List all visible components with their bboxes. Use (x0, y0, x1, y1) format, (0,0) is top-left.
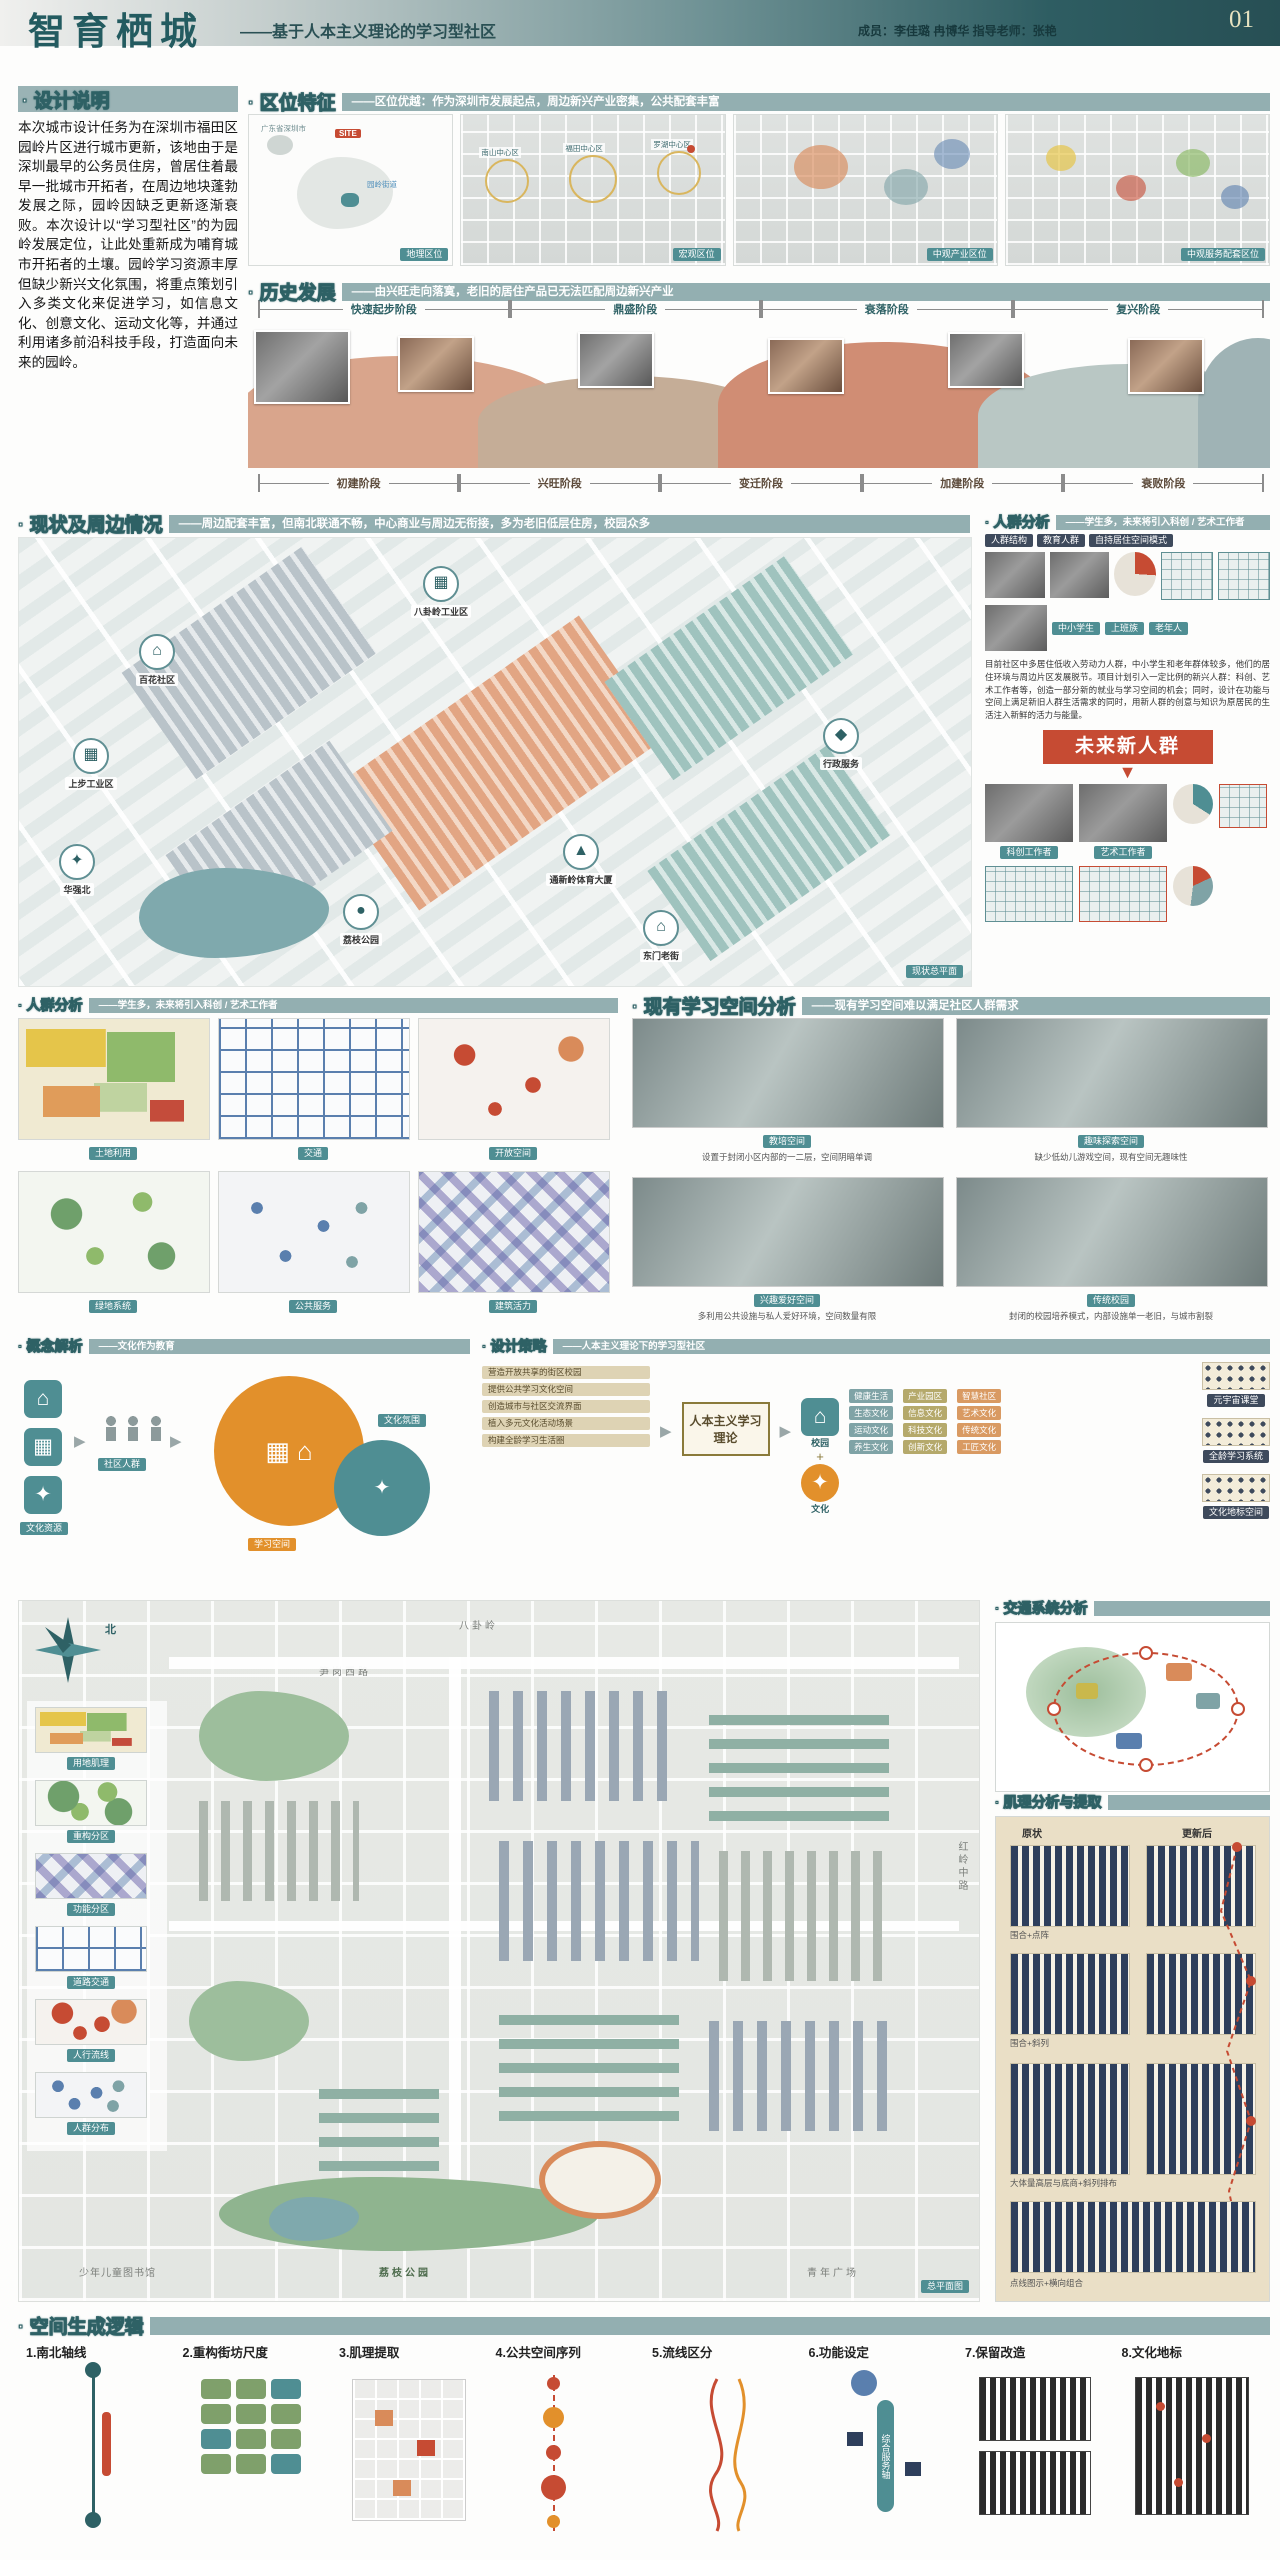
history-top-timeline: 快速起步阶段 鼎盛阶段 衰落阶段 复兴阶段 (258, 300, 1264, 318)
phase-label: 加建阶段 (932, 475, 992, 491)
mini-diagram[interactable]: 道路交通 (27, 1926, 155, 1990)
tag: 智慧社区 (957, 1389, 1001, 1403)
campus-culture-icons: ⌂ 校园 + ✦ 文化 (801, 1398, 839, 1515)
arrow-right-icon (780, 1422, 792, 1440)
strategy-header: · 设计策略 ——人本主义理论下的学习型社区 (482, 1336, 1270, 1356)
texture-header: · 肌理分析与提取 (995, 1792, 1270, 1812)
strategy-list: 营造开放共享的街区校园 提供公共学习文化空间 创造城市与社区交流界面 植入多元文… (482, 1362, 650, 1451)
tag: 工匠文化 (957, 1440, 1001, 1454)
traffic-title: · 交通系统分析 (995, 1598, 1088, 1618)
strategy-item: 创造城市与社区交流界面 (482, 1400, 650, 1413)
phase-cell: 初建阶段 (258, 474, 459, 492)
callout[interactable]: ⌂ 东门老街 (619, 910, 703, 964)
map-caption: 土地利用 (89, 1147, 137, 1160)
mini-diagram[interactable]: 人群分布 (27, 2072, 155, 2136)
right-row: 全龄学习系统 (1202, 1418, 1270, 1464)
status-header: · 现状及周边情况 ——周边配套丰富，但南北联通不畅，中心商业与周边无衔接，多为… (18, 510, 970, 537)
person-icon (104, 1416, 118, 1442)
learning-panel-campus[interactable]: 传统校园 封闭的校园培养模式，内部设施单一老旧，与城市割裂 (956, 1177, 1266, 1322)
traffic-header: · 交通系统分析 (995, 1598, 1270, 1618)
location-title: · 区位特征 (248, 88, 336, 115)
building-icon: ▦ (24, 1428, 62, 1466)
phase-label: 复兴阶段 (1108, 301, 1168, 317)
mini-label: 道路交通 (67, 1976, 115, 1989)
inset-label-street: 园岭街道 (367, 179, 397, 190)
block (201, 2454, 231, 2474)
openspace-map-image (418, 1018, 610, 1140)
person-icon (126, 1416, 140, 1442)
panel-caption: 趣味探索空间 (1078, 1135, 1144, 1148)
future-label: 艺术工作者 (1094, 846, 1151, 859)
ring-nanshan (485, 159, 529, 203)
future-axon-cube (1219, 784, 1267, 828)
arrow-right-icon (170, 1432, 182, 1450)
crowd-tagline: ——学生多，未来将引入科创 / 艺术工作者 (1056, 515, 1270, 530)
arrow-right-icon (74, 1432, 86, 1450)
park-icon: ● (343, 894, 379, 930)
credits-text: 成员：李佳璐 冉博华 指导老师：张艳 (858, 22, 1057, 39)
icon-label: 校园 (801, 1436, 839, 1449)
design-note-section: · 设计说明 本次城市设计任务为在深圳市福田区园岭片区进行城市更新，该地由于是深… (18, 86, 238, 372)
mini-map (35, 1926, 147, 1972)
step-label: 6.功能设定 (801, 2342, 958, 2361)
phase-cell: 变迁阶段 (660, 474, 861, 492)
panel-photo (632, 1018, 944, 1128)
texture-header-bar (1108, 1795, 1270, 1810)
col-head-original: 原状 (1022, 1825, 1042, 1840)
landmark-dot (1174, 2478, 1183, 2487)
landuse-map-image (18, 1018, 210, 1140)
history-photo[interactable] (948, 332, 1024, 388)
step-preserve[interactable]: 7.保留改造 (957, 2342, 1114, 2542)
street-label-top: 八卦岭 (459, 1617, 498, 1632)
park-label: 荔枝公园 (379, 2264, 431, 2279)
history-photo[interactable] (578, 332, 654, 388)
design-note-body: 本次城市设计任务为在深圳市福田区园岭片区进行城市更新，该地由于是深圳最早的公务员… (18, 118, 238, 372)
factory-icon: ▦ (73, 738, 109, 774)
texture-cell (393, 2480, 411, 2496)
footprint-pattern (979, 2377, 1091, 2441)
map-caption: 公共服务 (289, 1300, 337, 1313)
service-axis-capsule: 综合服务轴 (877, 2400, 894, 2512)
concept-label: 社区人群 (98, 1458, 146, 1471)
space-node (543, 2407, 564, 2428)
right-row: 元宇宙课堂 (1202, 1362, 1270, 1408)
step-sequence[interactable]: 4.公共空间序列 (488, 2342, 645, 2542)
icon-label: 文化 (801, 1502, 839, 1515)
right-row-label: 文化地标空间 (1203, 1506, 1269, 1519)
street-label-right: 红岭中路 (954, 1841, 969, 1893)
pattern-caption: 围合+点阵 (1010, 1929, 1049, 1941)
crowd-photo-row2: 中小学生 上班族 老年人 (985, 605, 1270, 651)
analysis-map-services[interactable]: 公共服务 (218, 1171, 408, 1314)
panel-caption: 兴趣爱好空间 (754, 1294, 820, 1307)
phase-cell: 鼎盛阶段 (510, 300, 762, 318)
location-tagline: ——区位优越：作为深圳市发展起点，周边新兴产业密集，公共配套丰富 (342, 93, 1270, 111)
road-strip (449, 1657, 461, 2241)
industry-blob (884, 169, 928, 205)
callout-label: 八卦岭工业区 (411, 605, 471, 618)
landmark-dot (1202, 2434, 1211, 2443)
down-arrow-icon (985, 764, 1270, 780)
learning-header: · 现有学习空间分析 ——现有学习空间难以满足社区人群需求 (632, 992, 1270, 1019)
crowd-photo[interactable] (985, 552, 1045, 598)
step-label: 3.肌理提取 (331, 2342, 488, 2361)
phase-label: 衰落阶段 (857, 301, 917, 317)
pattern-caption: 大体量高层与底商+斜列排布 (1010, 2177, 1117, 2189)
park-lake (139, 868, 329, 958)
crowd-photo[interactable] (1050, 552, 1110, 598)
learning-panel-hobby[interactable]: 兴趣爱好空间 多利用公共设施与私人爱好环境，空间数量有限 (632, 1177, 942, 1322)
map-caption: 建筑活力 (489, 1300, 537, 1313)
axis-dot (85, 2512, 101, 2528)
crowd-pie-chart (1114, 552, 1156, 596)
block (236, 2379, 266, 2399)
collage-hill (1198, 338, 1270, 468)
building-block (1116, 1733, 1142, 1749)
analysis-map-openspace[interactable]: 开放空间 (418, 1018, 608, 1161)
function-block (905, 2462, 921, 2476)
concept-label: 文化氛围 (378, 1414, 426, 1427)
person-tag: 上班族 (1105, 622, 1144, 635)
panel-desc: 多利用公共设施与私人爱好环境，空间数量有限 (632, 1310, 942, 1322)
phase-label: 初建阶段 (329, 475, 389, 491)
steps-title: · 空间生成逻辑 (18, 2312, 144, 2339)
steps-header-bar (150, 2317, 1270, 2335)
step-landmark[interactable]: 8.文化地标 (1114, 2342, 1271, 2542)
phase-cell: 衰落阶段 (761, 300, 1013, 318)
campus-icon: ⌂ (801, 1398, 839, 1436)
step-circulation[interactable]: 5.流线区分 (644, 2342, 801, 2542)
map-caption: 绿地系统 (89, 1300, 137, 1313)
culture-circle-teal: ✦ (334, 1440, 430, 1536)
mini-diagram[interactable]: 人行流线 (27, 1999, 155, 2063)
design-note-header: · 设计说明 (18, 86, 238, 112)
strategy-title: · 设计策略 (482, 1336, 547, 1356)
panel-photo (956, 1177, 1268, 1287)
library-label: 少年儿童图书馆 (79, 2264, 156, 2279)
history-photo[interactable] (398, 336, 474, 392)
history-photo[interactable] (768, 338, 844, 394)
callout[interactable]: ▦ 八卦岭工业区 (399, 566, 483, 620)
block (236, 2429, 266, 2449)
tag-column-community: 智慧社区 艺术文化 传统文化 工匠文化 (957, 1386, 1001, 1457)
phase-label: 鼎盛阶段 (605, 301, 665, 317)
block (201, 2404, 231, 2424)
flow-lines (677, 2375, 767, 2535)
inset-label-province: 广东省深圳市 (261, 123, 306, 134)
location-maps-row: 广东省深圳市 园岭街道 SITE 地理区位 南山中心区 福田中心区 罗湖中心区 … (248, 114, 1270, 266)
page-subtitle: ——基于人本主义理论的学习型社区 (240, 18, 496, 42)
steps-row: 1.南北轴线 2.重构街坊尺度 3. (18, 2342, 1270, 2542)
panel-desc: 设置于封闭小区内部的一二层，空间阴暗单调 (632, 1151, 942, 1163)
star-icon: ✦ (59, 844, 95, 880)
strategy-item: 营造开放共享的街区校园 (482, 1366, 650, 1379)
phase-label: 变迁阶段 (731, 475, 791, 491)
map-macro[interactable]: 南山中心区 福田中心区 罗湖中心区 宏观区位 (460, 114, 725, 266)
history-tagline: ——由兴旺走向落寞，老旧的居住产品已无法匹配周边新兴产业 (342, 283, 1270, 301)
callout[interactable]: ⌂ 百花社区 (115, 634, 199, 688)
house-icon: ⌂ (643, 910, 679, 946)
ring-luohu (657, 151, 701, 195)
panel-caption: 传统校园 (1087, 1294, 1135, 1307)
mini-label: 人群分布 (67, 2122, 115, 2135)
learning-panel-exploration[interactable]: 趣味探索空间 缺少低幼儿游戏空间，现有空间无趣味性 (956, 1018, 1266, 1163)
col-head: 自持居住空间模式 (1089, 534, 1173, 547)
mini-label: 用地肌理 (67, 1757, 115, 1770)
pictogram-grid (1202, 1418, 1270, 1446)
step-texture[interactable]: 3.肌理提取 (331, 2342, 488, 2542)
park-blob (189, 1981, 309, 2061)
mini-diagram[interactable]: 功能分区 (27, 1853, 155, 1917)
phase-cell: 兴旺阶段 (459, 474, 660, 492)
future-photo[interactable] (985, 784, 1073, 842)
future-card: 科创工作者 (985, 784, 1073, 860)
right-row-label: 全龄学习系统 (1203, 1450, 1269, 1463)
culture-icon: ✦ (801, 1464, 839, 1502)
callout[interactable]: ▦ 上步工业区 (49, 738, 133, 792)
texture-map (352, 2379, 466, 2521)
steps-header: · 空间生成逻辑 (18, 2312, 1270, 2339)
tag: 传统文化 (957, 1423, 1001, 1437)
analysis-map-traffic[interactable]: 交通 (218, 1018, 408, 1161)
site-district-shape (341, 193, 359, 207)
resource-icons: ⌂ ▦ ✦ (24, 1380, 62, 1514)
design-note-title: · 设计说明 (22, 86, 110, 113)
step-label: 5.流线区分 (644, 2342, 801, 2361)
poster-board: 智育栖城 ——基于人本主义理论的学习型社区 成员：李佳璐 冉博华 指导老师：张艳… (0, 0, 1280, 2560)
callout-label: 行政服务 (820, 757, 862, 770)
history-title: · 历史发展 (248, 278, 336, 305)
service-blob (1176, 149, 1210, 177)
analysis-header: · 人群分析 ——学生多，未来将引入科创 / 艺术工作者 (18, 995, 618, 1015)
factory-icon: ▦ (423, 566, 459, 602)
future-card: 艺术工作者 (1079, 784, 1167, 860)
space-node (547, 2377, 560, 2390)
block-grid (201, 2379, 305, 2474)
master-plan[interactable]: 北 八卦岭 笋岗西路 红岭中路 少年儿童图书馆 荔枝公园 青年广场 总平面图 用… (18, 1600, 980, 2302)
block (236, 2454, 266, 2474)
mini-diagram[interactable]: 重构分区 (27, 1780, 155, 1844)
axis-red-bar (102, 2412, 111, 2476)
step-label: 7.保留改造 (957, 2342, 1114, 2361)
axon-caption: 现状总平面 (906, 965, 963, 978)
panel-photo (956, 1018, 1268, 1128)
texture-section: · 肌理分析与提取 原状 更新后 围合+点阵 围合+斜列 大体量高层与底商+斜列… (995, 1792, 1270, 2302)
crowd-header: · 人群分析 ——学生多，未来将引入科创 / 艺术工作者 (985, 512, 1270, 532)
site-axonometric[interactable]: ▦ 八卦岭工业区 ⌂ 百花社区 ▦ 上步工业区 ✦ 华强北 ● 荔枝公园 ⌂ 东… (18, 537, 972, 987)
crowd-col-heads: 人群结构 教育人群 自持居住空间模式 (985, 534, 1270, 547)
panel-caption: 教培空间 (763, 1135, 811, 1148)
tag: 艺术文化 (957, 1406, 1001, 1420)
analysis-map-landuse[interactable]: 土地利用 (18, 1018, 208, 1161)
tag-column-industry: 产业园区 信息文化 科技文化 创新文化 (903, 1386, 947, 1457)
building-block (1166, 1663, 1192, 1681)
pattern-original (1010, 2063, 1130, 2175)
concept-label: 学习空间 (248, 1538, 296, 1551)
plus-icon: + (801, 1449, 839, 1464)
sequence-chain (553, 2375, 595, 2531)
learning-panels-grid: 教培空间 设置于封闭小区内部的一二层，空间阴暗单调 趣味探索空间 缺少低幼儿游戏… (632, 1018, 1270, 1322)
culture-icon: ✦ (24, 1476, 62, 1514)
phase-label: 兴旺阶段 (530, 475, 590, 491)
pattern-original (1010, 1845, 1130, 1927)
pictogram-grid (1202, 1362, 1270, 1390)
block (201, 2379, 231, 2399)
compass-icon (33, 1615, 103, 1685)
strategy-item: 构建全龄学习生活圈 (482, 1434, 650, 1447)
block (271, 2429, 301, 2449)
building-blocks (499, 2001, 679, 2121)
housing-axon-cube (1079, 866, 1167, 922)
phase-label: 衰败阶段 (1133, 475, 1193, 491)
building-blocks (199, 1801, 359, 1901)
callout[interactable]: ◆ 行政服务 (799, 718, 883, 772)
map-caption: 中观产业区位 (927, 248, 993, 261)
mix-pie-chart (1173, 866, 1213, 906)
crowd-photo-row (985, 552, 1270, 600)
learning-tagline: ——现有学习空间难以满足社区人群需求 (802, 997, 1270, 1015)
ring-label: 福田中心区 (563, 143, 605, 154)
texture-cell (375, 2410, 393, 2426)
panel-desc: 封闭的校园培养模式，内部设施单一老旧，与城市割裂 (956, 1310, 1266, 1322)
strategy-item: 提供公共学习文化空间 (482, 1383, 650, 1396)
pattern-combined (1010, 2201, 1256, 2273)
building-block (1076, 1683, 1098, 1699)
building-blocks (709, 2021, 889, 2131)
gov-icon: ◆ (823, 718, 859, 754)
step-label: 2.重构街坊尺度 (175, 2342, 332, 2361)
traffic-diagram[interactable] (995, 1622, 1270, 1792)
concept-diagram: ⌂ ▦ ✦ 文化资源 社区人群 ▦ ⌂ ✦ 学习空间 文化氛围 (18, 1362, 470, 1584)
service-blob (1046, 145, 1076, 171)
mini-map (35, 1999, 147, 2045)
map-industry[interactable]: 中观产业区位 (733, 114, 998, 266)
footprint-pattern (979, 2451, 1091, 2515)
building-blocks (719, 1851, 889, 1981)
block (271, 2404, 301, 2424)
callout[interactable]: ✦ 华强北 (35, 844, 119, 898)
future-pie-chart (1173, 784, 1213, 824)
tag: 创新文化 (903, 1440, 947, 1454)
tag: 健康生活 (849, 1389, 893, 1403)
map-services[interactable]: 中观服务配套区位 (1005, 114, 1270, 266)
function-block (847, 2432, 863, 2446)
landmark-dot (1156, 2402, 1165, 2411)
header-bar: 智育栖城 ——基于人本主义理论的学习型社区 成员：李佳璐 冉博华 指导老师：张艳… (0, 0, 1280, 46)
map-caption: 中观服务配套区位 (1181, 248, 1265, 261)
vitality-map-image (418, 1171, 610, 1293)
traffic-header-bar (1094, 1601, 1270, 1616)
industry-blob (934, 139, 970, 169)
step-label: 8.文化地标 (1114, 2342, 1271, 2361)
axis-dot (85, 2362, 101, 2378)
plan-caption: 总平面图 (921, 2280, 969, 2293)
mini-map (35, 1780, 147, 1826)
crowd-title: · 人群分析 (985, 512, 1050, 532)
mini-diagram[interactable]: 用地肌理 (27, 1707, 155, 1771)
strategy-diagram: 营造开放共享的街区校园 提供公共学习文化空间 创造城市与社区交流界面 植入多元文… (482, 1362, 1270, 1584)
bottom-caption: 点线图示+横向组合 (1010, 2277, 1083, 2289)
page-number: 01 (1229, 6, 1254, 34)
crowd-photo[interactable] (985, 605, 1047, 651)
strategy-item: 植入多元文化活动场景 (482, 1417, 650, 1430)
callout[interactable]: ▲ 通新岭体育大厦 (539, 834, 623, 888)
future-photo[interactable] (1079, 784, 1167, 842)
concept-tagline: ——文化作为教育 (89, 1339, 470, 1354)
building-block (1196, 1693, 1220, 1709)
history-photo[interactable] (254, 330, 350, 404)
status-title: · 现状及周边情况 (18, 510, 163, 537)
step-axis[interactable]: 1.南北轴线 (18, 2342, 175, 2542)
callout-label: 百花社区 (136, 673, 178, 686)
inset-province-shape (267, 135, 293, 155)
future-crowd-row: 科创工作者 艺术工作者 (985, 784, 1270, 860)
history-bottom-timeline: 初建阶段 兴旺阶段 变迁阶段 加建阶段 衰败阶段 (258, 474, 1264, 492)
map-geographic[interactable]: 广东省深圳市 园岭街道 SITE 地理区位 (248, 114, 453, 266)
panel-desc: 缺少低幼儿游戏空间，现有空间无趣味性 (956, 1151, 1266, 1163)
space-node (546, 2445, 561, 2460)
footprint-pattern (1135, 2377, 1249, 2515)
stadium-track (539, 2141, 661, 2219)
analysis-tagline: ——学生多，未来将引入科创 / 艺术工作者 (89, 998, 618, 1013)
analysis-map-green[interactable]: 绿地系统 (18, 1171, 208, 1314)
step-function[interactable]: 6.功能设定 综合服务轴 (801, 2342, 958, 2542)
panel-photo (632, 1177, 944, 1287)
phase-label: 快速起步阶段 (343, 301, 425, 317)
block (271, 2454, 301, 2474)
arrow-right-icon (660, 1422, 672, 1440)
page-title: 智育栖城 (28, 1, 204, 55)
future-cubes-row (985, 866, 1270, 922)
person-tag: 老年人 (1149, 622, 1188, 635)
step-blocks[interactable]: 2.重构街坊尺度 (175, 2342, 332, 2542)
analysis-title: · 人群分析 (18, 995, 83, 1015)
history-photo[interactable] (1128, 338, 1204, 394)
site-pin (687, 145, 695, 153)
col-head: 人群结构 (985, 534, 1033, 547)
learning-title: · 现有学习空间分析 (632, 992, 796, 1019)
block (271, 2379, 301, 2399)
map-caption: 交通 (298, 1147, 328, 1160)
texture-panel[interactable]: 原状 更新后 围合+点阵 围合+斜列 大体量高层与底商+斜列排布 点线图示+横向… (995, 1816, 1270, 2302)
housing-axon-cube (985, 866, 1073, 922)
function-node (851, 2370, 877, 2396)
analysis-maps-grid: 土地利用 交通 开放空间 绿地系统 公共服务 建筑活力 (18, 1018, 618, 1314)
learning-panel-tutoring[interactable]: 教培空间 设置于封闭小区内部的一二层，空间阴暗单调 (632, 1018, 942, 1163)
analysis-map-vitality[interactable]: 建筑活力 (418, 1171, 608, 1314)
building-blocks (319, 2081, 439, 2171)
strategy-tagline: ——人本主义理论下的学习型社区 (553, 1339, 1270, 1354)
concept-title: · 概念解析 (18, 1336, 83, 1356)
tag: 生态文化 (849, 1406, 893, 1420)
callout[interactable]: ● 荔枝公园 (319, 894, 403, 948)
traffic-map-image (218, 1018, 410, 1140)
pattern-original (1010, 1953, 1130, 2035)
plaza-label: 青年广场 (807, 2264, 859, 2279)
space-node (541, 2475, 566, 2500)
ring-futian (569, 155, 617, 203)
phase-cell: 加建阶段 (862, 474, 1063, 492)
green-map-image (18, 1171, 210, 1293)
pictogram-grid (1202, 1474, 1270, 1502)
tag: 养生文化 (849, 1440, 893, 1454)
right-row-label: 元宇宙课堂 (1207, 1394, 1264, 1407)
future-crowd-badge: 未来新人群 (1043, 730, 1213, 764)
strategy-right-stack: 元宇宙课堂 全龄学习系统 文化地标空间 (1202, 1362, 1270, 1520)
people-icons (102, 1416, 165, 1447)
callout-label: 上步工业区 (65, 777, 116, 790)
